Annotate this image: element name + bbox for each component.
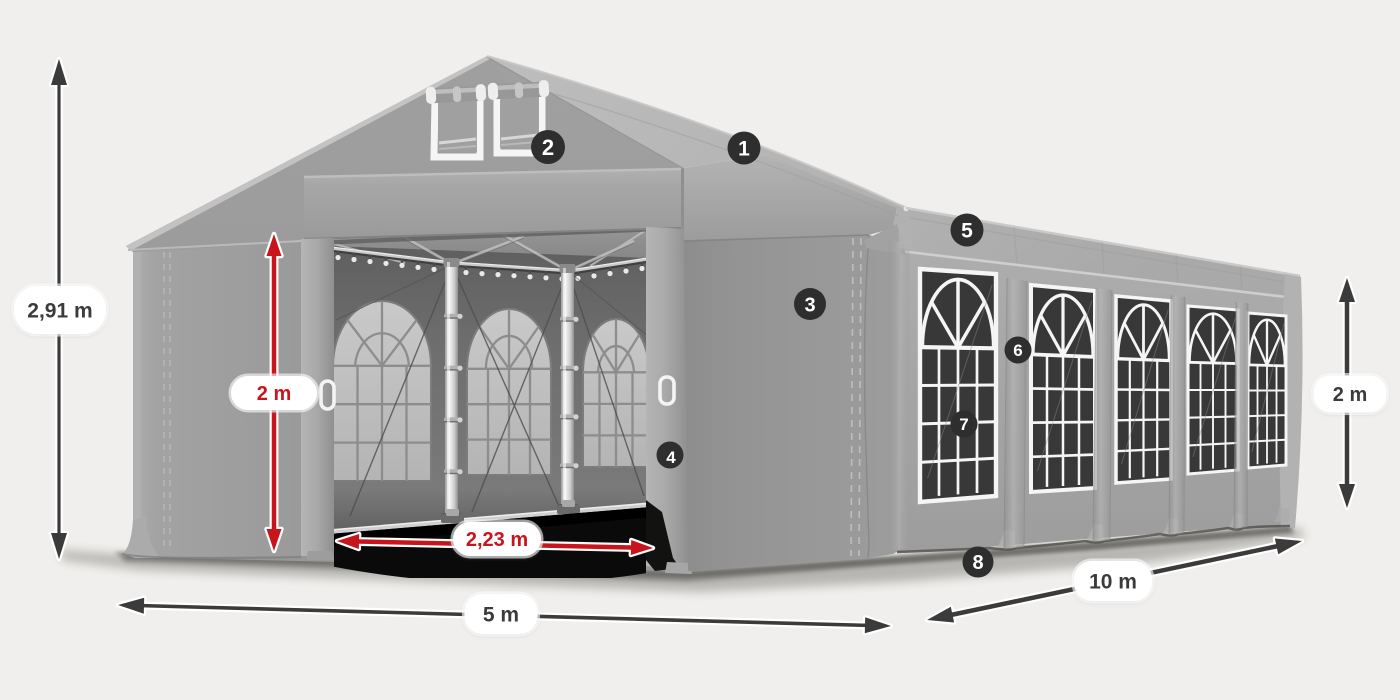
svg-text:5: 5 (961, 220, 973, 243)
svg-text:3: 3 (804, 294, 815, 316)
svg-text:2,23 m: 2,23 m (466, 529, 528, 551)
svg-text:10 m: 10 m (1089, 571, 1137, 594)
svg-text:2,91 m: 2,91 m (27, 300, 92, 323)
svg-text:8: 8 (972, 552, 983, 574)
svg-text:1: 1 (738, 138, 750, 161)
svg-text:5 m: 5 m (483, 604, 519, 627)
svg-text:2 m: 2 m (257, 383, 291, 405)
svg-text:2: 2 (542, 135, 554, 160)
svg-text:7: 7 (959, 415, 968, 434)
svg-text:2 m: 2 m (1333, 384, 1367, 406)
svg-text:4: 4 (666, 448, 676, 467)
svg-text:6: 6 (1013, 341, 1022, 360)
